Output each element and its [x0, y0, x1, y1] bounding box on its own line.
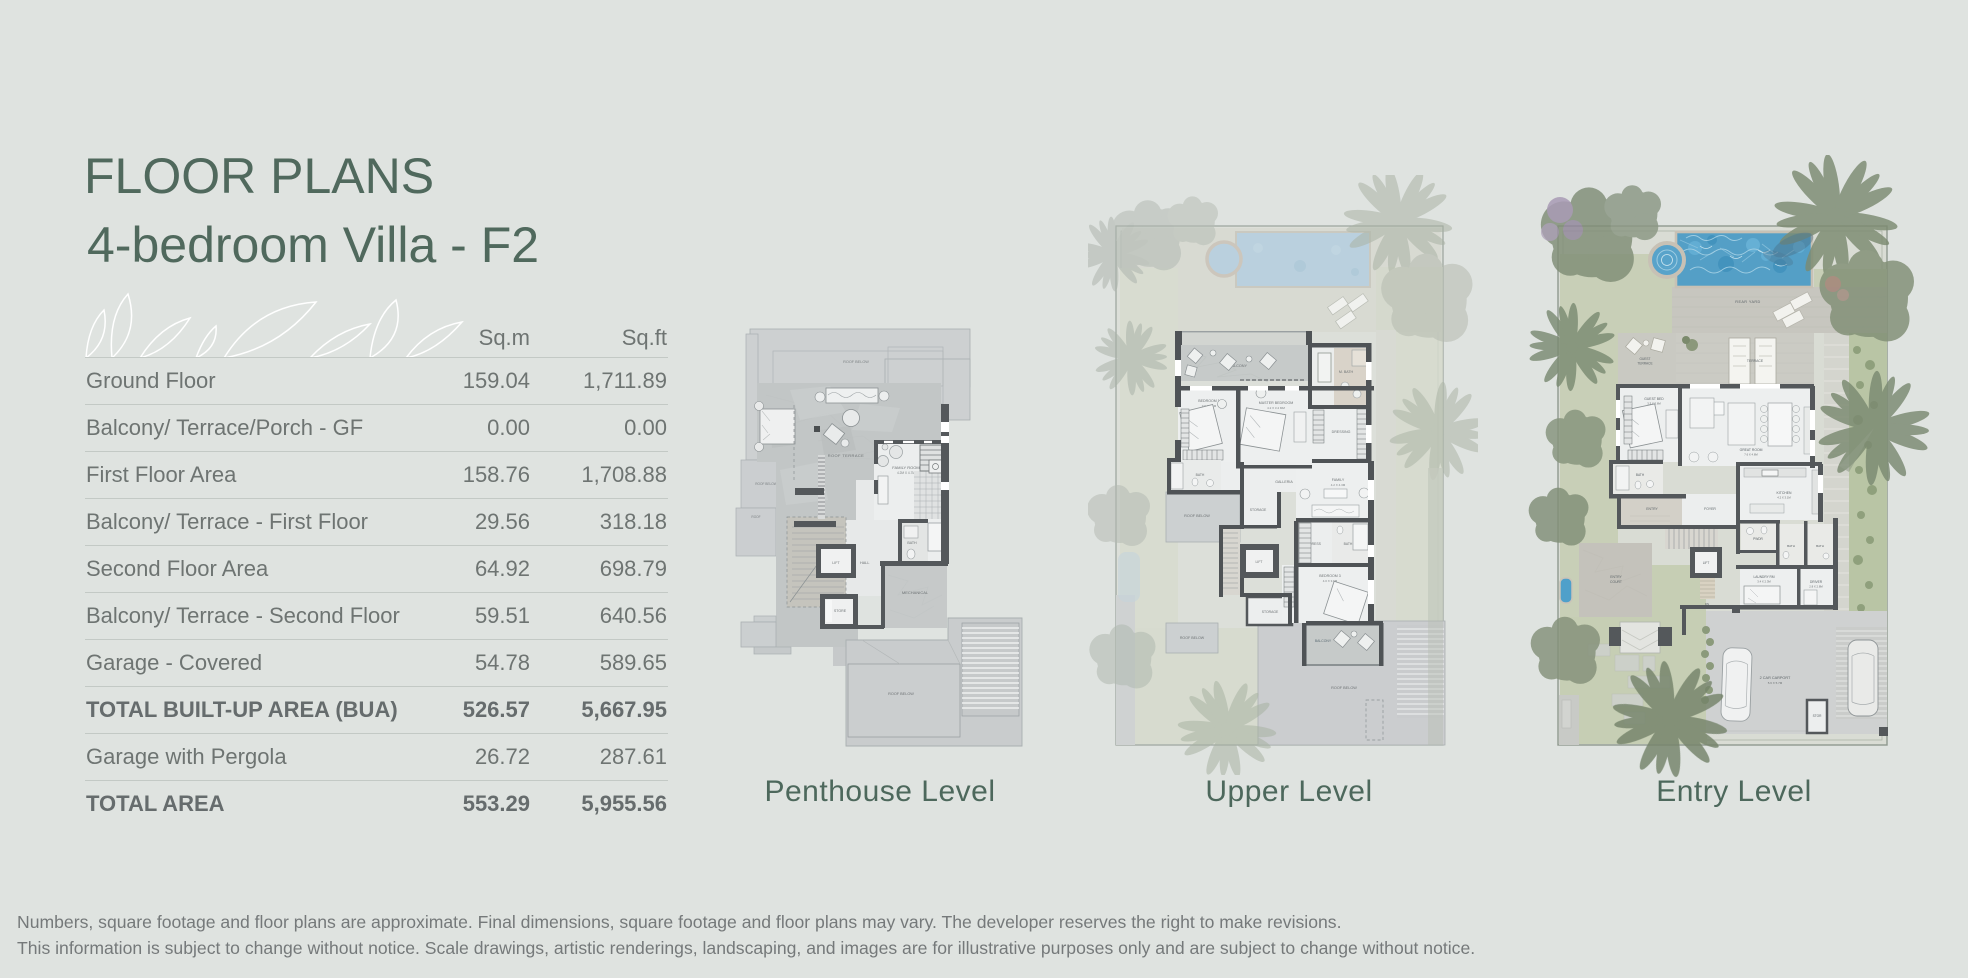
svg-text:ROOF BELOW: ROOF BELOW	[1184, 514, 1210, 518]
svg-text:ENTRY: ENTRY	[1646, 507, 1658, 511]
svg-text:ROOF BELOW: ROOF BELOW	[843, 360, 869, 364]
svg-text:BATH: BATH	[1196, 473, 1205, 477]
svg-text:REAR YARD: REAR YARD	[1735, 300, 1760, 304]
svg-text:STORAGE: STORAGE	[1250, 508, 1267, 512]
svg-text:STOR: STOR	[1813, 714, 1822, 718]
svg-text:ROOF BELOW: ROOF BELOW	[888, 692, 914, 696]
svg-text:GALLERIA: GALLERIA	[1275, 480, 1293, 484]
svg-text:FAMILY ROOM: FAMILY ROOM	[892, 465, 919, 470]
svg-text:FOYER: FOYER	[1704, 507, 1716, 511]
svg-text:TERRACE: TERRACE	[1747, 359, 1764, 363]
svg-text:BATH: BATH	[1787, 544, 1795, 548]
svg-text:ROOF BELOW: ROOF BELOW	[1331, 686, 1357, 690]
svg-text:M. BATH: M. BATH	[1339, 370, 1354, 374]
svg-text:2.8 X 2.8M: 2.8 X 2.8M	[1809, 585, 1823, 589]
svg-text:ROOF TERRACE: ROOF TERRACE	[828, 453, 865, 458]
svg-text:TERRACE: TERRACE	[1637, 362, 1652, 366]
svg-text:DRESSING: DRESSING	[1332, 430, 1351, 434]
svg-text:2 CAR CARPORT: 2 CAR CARPORT	[1760, 676, 1791, 680]
svg-text:BATH: BATH	[1344, 542, 1353, 546]
svg-text:GREAT ROOM: GREAT ROOM	[1740, 448, 1763, 452]
svg-text:BALCONY: BALCONY	[1315, 639, 1332, 643]
svg-text:LIFT: LIFT	[1703, 561, 1710, 565]
svg-text:BATH: BATH	[907, 541, 917, 545]
svg-text:COURT: COURT	[1610, 580, 1622, 584]
svg-text:STORAGE: STORAGE	[1262, 610, 1279, 614]
svg-text:STORE: STORE	[834, 609, 847, 613]
svg-text:KITCHEN: KITCHEN	[1777, 491, 1792, 495]
svg-text:FAMILY: FAMILY	[1332, 478, 1345, 482]
svg-text:ENTRY: ENTRY	[1610, 575, 1622, 579]
svg-text:5.6 X 5.7M: 5.6 X 5.7M	[1768, 681, 1783, 685]
svg-text:ROOF BELOW: ROOF BELOW	[755, 482, 777, 486]
svg-text:7.6 X 4.6M: 7.6 X 4.6M	[1744, 453, 1758, 457]
svg-text:MECHANICAL: MECHANICAL	[902, 590, 929, 595]
svg-text:LIFT: LIFT	[832, 561, 840, 565]
svg-text:3.4 X 2.3M: 3.4 X 2.3M	[1757, 580, 1771, 584]
svg-text:LAUNDRY RM: LAUNDRY RM	[1754, 575, 1775, 579]
svg-text:ROOF BELOW: ROOF BELOW	[1180, 636, 1205, 640]
svg-text:4.2M X 4.7M: 4.2M X 4.7M	[897, 471, 915, 475]
svg-text:HALL: HALL	[860, 561, 870, 565]
svg-text:4.2 X 4.3M: 4.2 X 4.3M	[1331, 483, 1346, 487]
svg-text:GUEST BED: GUEST BED	[1644, 397, 1664, 401]
svg-text:4.2 X 3.1M: 4.2 X 3.1M	[1777, 496, 1791, 500]
svg-text:ROOF: ROOF	[751, 515, 760, 519]
svg-text:DRIVER: DRIVER	[1810, 580, 1823, 584]
svg-text:4.2 X 3.4 MM: 4.2 X 3.4 MM	[1267, 406, 1285, 410]
svg-text:MASTER BEDROOM: MASTER BEDROOM	[1259, 401, 1294, 405]
svg-text:BEDROOM 1: BEDROOM 1	[1198, 399, 1220, 403]
svg-text:BATH: BATH	[1636, 473, 1645, 477]
svg-text:GUEST: GUEST	[1640, 357, 1651, 361]
svg-text:BATH: BATH	[1816, 544, 1824, 548]
svg-text:BEDROOM 3: BEDROOM 3	[1319, 574, 1341, 578]
svg-text:LIFT: LIFT	[1256, 560, 1263, 564]
svg-text:PWDR: PWDR	[1753, 537, 1763, 541]
